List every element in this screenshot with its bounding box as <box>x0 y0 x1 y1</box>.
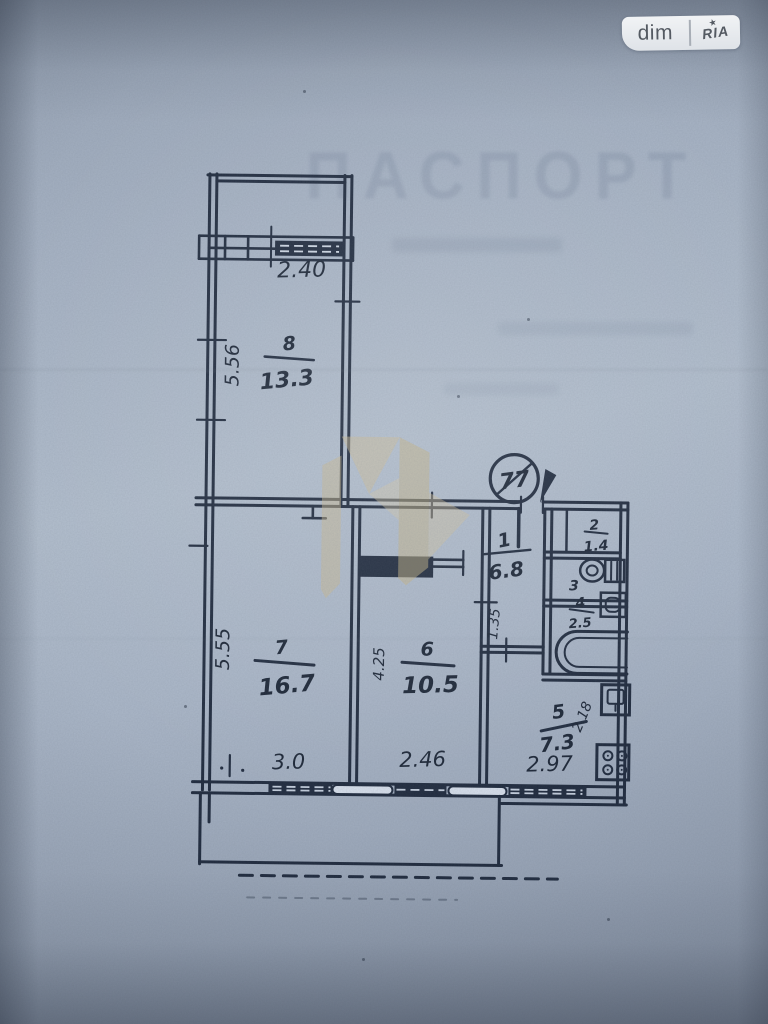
dust-speck <box>527 318 530 321</box>
dust-speck <box>362 958 365 961</box>
kitchen-depth-label: 2.18 <box>569 699 596 734</box>
window-hatch-icon <box>268 783 332 795</box>
paper-crease <box>0 369 768 372</box>
window-hatch-icon <box>275 241 344 257</box>
apartment-number-label: 77 <box>498 467 532 496</box>
window-hatch-icon <box>508 786 586 798</box>
dimria-logo-badge: dim ★ RIA <box>622 15 741 51</box>
dust-speck <box>607 918 610 921</box>
dim-logo-text: dim <box>622 16 689 51</box>
bathroom-number-label: 4 <box>574 595 586 612</box>
dust-speck <box>303 90 306 93</box>
kitchen-width-label: 2.97 <box>526 752 574 777</box>
window-sill-icon <box>332 785 392 795</box>
room-6-number-label: 6 <box>420 638 434 660</box>
closet-number-label: 2 <box>589 517 600 534</box>
room-7-area-label: 16.7 <box>258 670 317 701</box>
room-8-width-label: 2.40 <box>277 257 327 283</box>
ria-logo-text: RIA <box>701 23 730 43</box>
room-7-width-label: 3.0 <box>272 749 306 774</box>
room-8-number-label: 8 <box>282 332 297 355</box>
hallway-area-label: 6.8 <box>487 556 525 584</box>
washbasin-icon <box>601 593 626 617</box>
passage-width-label: 1.35 <box>485 608 504 641</box>
paper-crease <box>0 638 768 641</box>
window-sill-icon <box>448 786 506 796</box>
wc-number-label: 3 <box>569 578 579 594</box>
entrance-arrow-icon <box>540 469 556 503</box>
hallway-number-label: 1 <box>496 529 513 553</box>
kitchen-number-label: 5 <box>551 700 567 724</box>
dust-speck <box>184 705 187 708</box>
room-7-length-label: 5.55 <box>212 628 235 671</box>
room-6-length-label: 4.25 <box>370 647 388 681</box>
room-6-area-label: 10.5 <box>402 672 459 699</box>
lower-balcony-outline <box>199 793 558 901</box>
toilet-icon <box>580 559 624 582</box>
bathroom-area-label: 2.5 <box>568 616 592 633</box>
room-6-width-label: 2.46 <box>399 747 446 772</box>
room-8-length-label: 5.56 <box>221 344 244 387</box>
dust-speck <box>457 395 460 398</box>
floor-plan-photo: ПАСПОРТ <box>0 0 768 1024</box>
entrance-annotation: 77 <box>490 454 557 503</box>
closet-area-label: 1.4 <box>583 538 609 556</box>
floor-plan-drawing: 77 2.40 5.56 8 13.3 5.55 7 <box>0 0 768 1024</box>
